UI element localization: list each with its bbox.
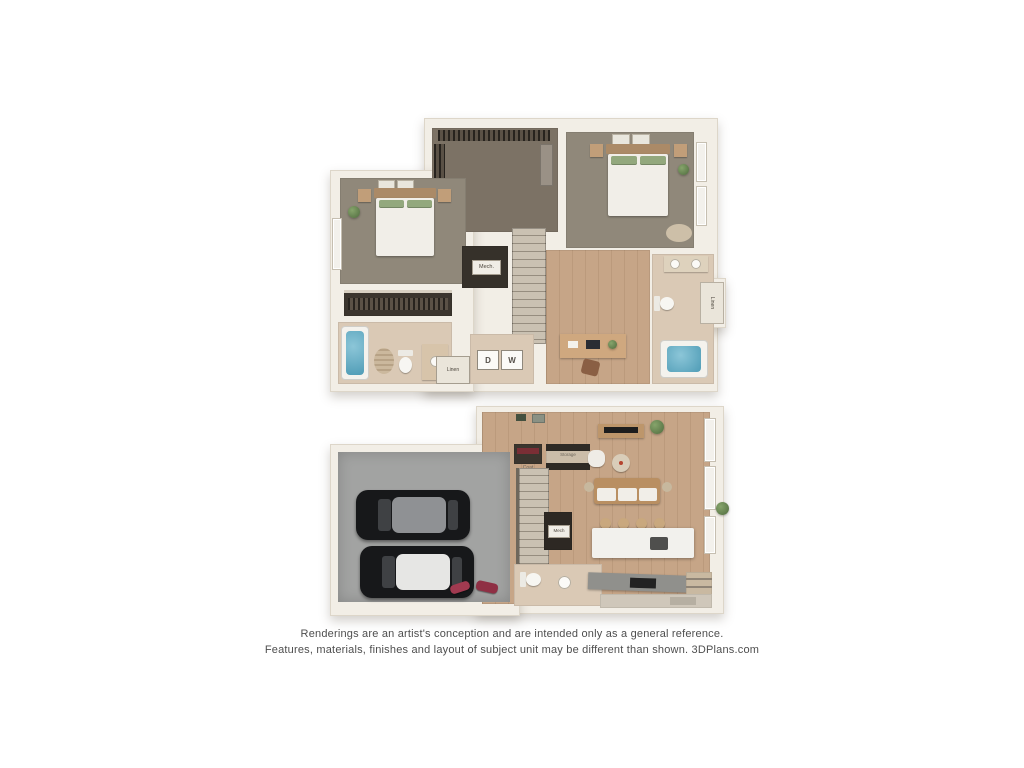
storage-closet-label: Storage (546, 453, 590, 458)
tv-console (598, 424, 644, 438)
closet-rack (438, 130, 550, 141)
window (704, 516, 716, 554)
nightstand (590, 144, 603, 157)
stairs-upper (512, 228, 546, 344)
door-mat (670, 597, 696, 605)
cooktop (630, 578, 656, 589)
pantry-shelf (686, 586, 712, 588)
closet-rack (348, 298, 448, 310)
car-gray-roof (356, 490, 470, 540)
car-roof (396, 554, 450, 590)
rug (666, 224, 692, 242)
mech-lower-label: Mech (548, 525, 570, 538)
pillow (407, 200, 432, 208)
bathroom-left (338, 322, 452, 384)
lower-floor-plan: Coat Storage Mech (330, 406, 730, 618)
plant (650, 420, 664, 434)
desk-plant (608, 340, 617, 349)
car-windshield (378, 499, 391, 531)
thermostat (516, 414, 526, 421)
pillow (611, 156, 637, 165)
storage-closet: Storage (546, 444, 590, 470)
toilet (526, 573, 541, 586)
bathtub (660, 340, 708, 378)
sofa (594, 478, 660, 504)
tv (604, 427, 638, 433)
nightstand (674, 144, 687, 157)
side-table (612, 454, 630, 472)
bedroom-right (566, 132, 694, 248)
laundry-closet: D W (470, 334, 534, 384)
sink (670, 259, 680, 269)
entry-hall (600, 594, 712, 608)
disclaimer: Renderings are an artist's conception an… (0, 626, 1024, 658)
storage-shelf (546, 463, 590, 470)
washer: W (501, 350, 523, 370)
desk-chair (580, 358, 600, 377)
linen-hall-label: Linen (709, 297, 715, 309)
upper-floor-plan: Mech. D W (330, 118, 726, 392)
laptop (586, 340, 600, 349)
mech-closet-lower: Mech (544, 512, 572, 550)
kitchen-counter (588, 572, 693, 593)
storage-shelf (546, 444, 590, 451)
garage (338, 452, 510, 602)
pedestal-sink (558, 576, 571, 589)
mech-closet: Mech. (462, 246, 508, 288)
bed-headboard (606, 144, 670, 154)
sofa-cushion (639, 488, 657, 501)
pillow (379, 200, 404, 208)
closet-shelf (344, 290, 452, 293)
window (696, 186, 707, 226)
car-windshield (382, 556, 395, 588)
bath-water (667, 346, 701, 372)
nightstand (438, 189, 451, 202)
floor-plan-rendering-page: Mech. D W (0, 0, 1024, 768)
disclaimer-line-1: Renderings are an artist's conception an… (0, 626, 1024, 642)
bed-headboard (374, 188, 436, 198)
mini-motorcycle (475, 580, 499, 594)
end-table (584, 482, 594, 492)
hamper (374, 348, 394, 374)
linen-closet-label: Linen (436, 356, 470, 384)
mech-closet-label: Mech. (472, 260, 501, 275)
toilet (398, 350, 413, 356)
armchair (588, 450, 605, 467)
fruit-bowl (619, 461, 623, 465)
car-rear-glass (448, 500, 458, 530)
bedroom-left (340, 178, 466, 284)
pantry-closet (686, 572, 712, 596)
plant (716, 502, 729, 515)
vanity (664, 256, 708, 272)
plant (678, 164, 689, 175)
disclaimer-line-2: Features, materials, finishes and layout… (0, 642, 1024, 658)
desk (560, 334, 626, 358)
closet-shelf (540, 144, 553, 186)
bedroom-closet (344, 290, 452, 316)
sink (691, 259, 701, 269)
bath-water (346, 331, 364, 375)
loft-hall (546, 250, 650, 384)
nightstand (358, 189, 371, 202)
sofa-cushion (618, 488, 637, 501)
linen-hall-closet: Linen (700, 282, 724, 324)
toilet (399, 357, 412, 373)
coat-closet (514, 444, 542, 464)
window (704, 466, 716, 510)
kitchen-island (592, 528, 694, 558)
toilet (660, 297, 674, 310)
coat-rack (517, 448, 539, 454)
bathtub (341, 326, 369, 380)
pillow (640, 156, 666, 165)
dryer: D (477, 350, 499, 370)
keypad (532, 414, 545, 423)
car-roof (392, 497, 446, 533)
papers (568, 341, 578, 348)
window (332, 218, 342, 270)
end-table (662, 482, 672, 492)
window (704, 418, 716, 462)
island-sink (650, 537, 668, 550)
pantry-shelf (686, 578, 712, 580)
plant (348, 206, 360, 218)
window (696, 142, 707, 182)
sofa-cushion (597, 488, 616, 501)
